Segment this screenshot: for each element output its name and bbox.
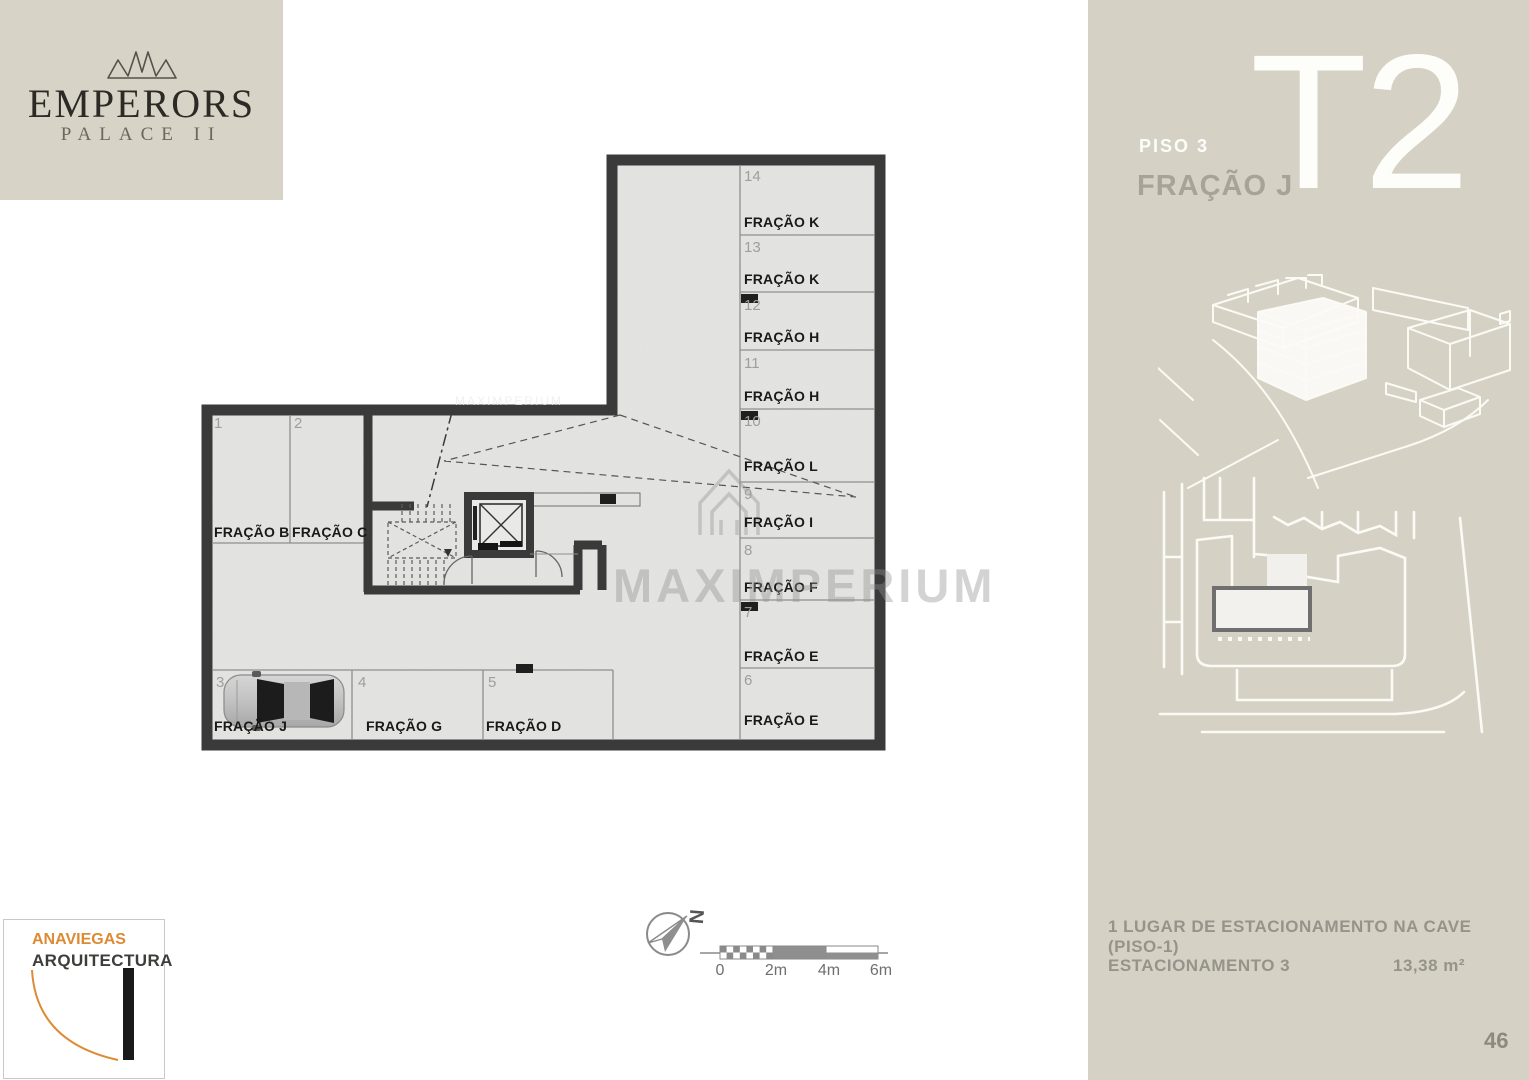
stall-number: 4 — [358, 674, 366, 691]
stall-label: FRAÇÃO E — [744, 648, 819, 664]
stall-number: 11 — [744, 355, 760, 372]
mini-watermark-text: MAXIMPERIUM — [455, 394, 563, 408]
scale-bar — [700, 946, 888, 959]
stall-label: FRAÇÃO H — [744, 329, 819, 345]
stall-number: 6 — [744, 672, 752, 689]
stall-number: 5 — [488, 674, 496, 691]
scale-tick-label: 0 — [700, 962, 740, 980]
stall-label: FRAÇÃO K — [744, 214, 819, 230]
stall-number: 13 — [744, 239, 761, 256]
buildings-illustration — [1158, 250, 1518, 495]
stall-number: 10 — [744, 413, 761, 430]
stall-number: 12 — [744, 297, 761, 314]
stall-number: 3 — [216, 674, 224, 691]
stall-label: FRAÇÃO H — [744, 388, 819, 404]
scale-tick-label: 4m — [809, 962, 849, 980]
scale-tick-label: 6m — [861, 962, 901, 980]
scale-tick-label: 2m — [756, 962, 796, 980]
stall-number: 1 — [214, 415, 222, 432]
stall-number: 8 — [744, 542, 752, 559]
stall-number: 9 — [744, 486, 752, 503]
stall-label: FRAÇÃO I — [744, 514, 813, 530]
stall-label: FRAÇÃO B — [214, 524, 289, 540]
floor-label: PISO 3 — [1139, 136, 1209, 157]
stall-label: FRAÇÃO D — [486, 718, 561, 734]
stall-number: 2 — [294, 415, 302, 432]
stall-label: FRAÇÃO G — [366, 718, 442, 734]
stall-label: FRAÇÃO C — [292, 524, 367, 540]
stall-label: FRAÇÃO E — [744, 712, 819, 728]
siteplan-illustration — [1142, 462, 1529, 737]
watermark-text: MAXIMPERIUM — [613, 558, 996, 613]
highlighted-building-footprint — [1214, 588, 1310, 630]
stall-number: 14 — [744, 168, 761, 185]
stall-label: FRAÇÃO K — [744, 271, 819, 287]
north-label: N — [683, 908, 707, 924]
stall-label: FRAÇÃO L — [744, 458, 818, 474]
fraction-label: FRAÇÃO J — [1137, 170, 1293, 203]
stall-label: FRAÇÃO J — [214, 718, 287, 734]
